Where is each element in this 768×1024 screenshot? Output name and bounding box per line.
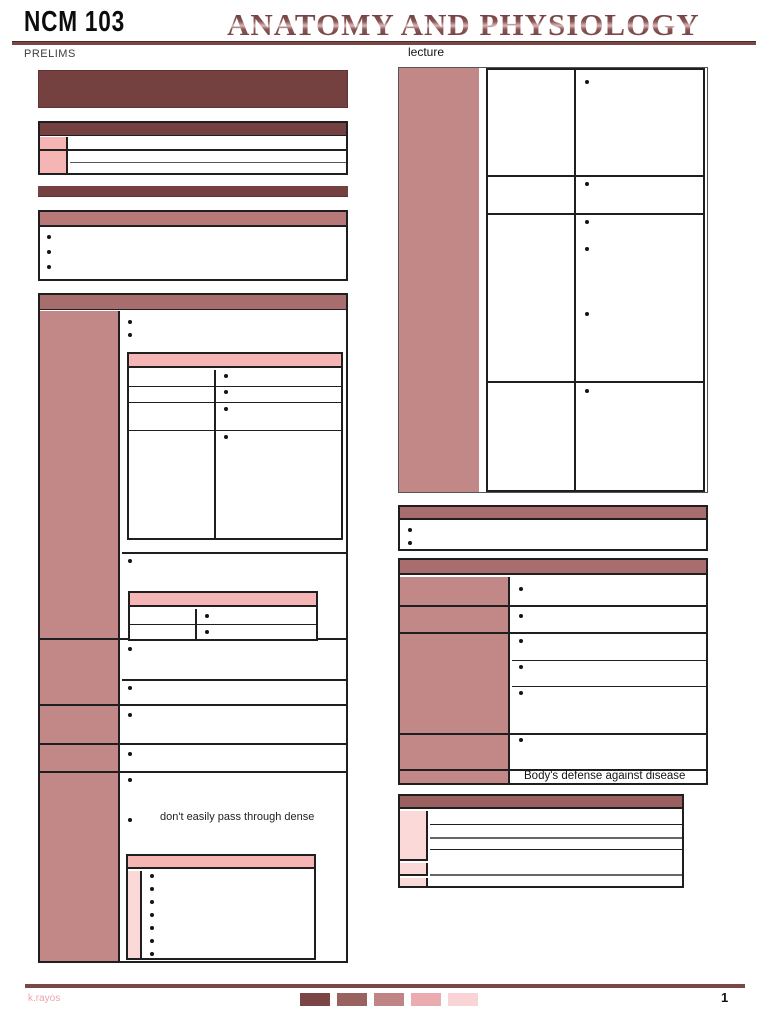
terms-table (38, 121, 348, 175)
bullet-dot (150, 900, 154, 904)
nested-table-1 (127, 352, 343, 540)
column-divider (574, 70, 576, 490)
row-divider (430, 824, 682, 825)
bullet-dot (585, 312, 589, 316)
left-note-text: don't easily pass through dense (160, 811, 314, 823)
bullet-dot (519, 614, 523, 618)
nested-table-3-pink-column (128, 871, 142, 958)
bullet-dot (519, 665, 523, 669)
column-divider (214, 370, 216, 538)
row-divider (40, 771, 346, 773)
row-divider (430, 874, 682, 876)
main-notes-table: don't easily pass through dense (38, 293, 348, 963)
bullet-dot (150, 939, 154, 943)
nested-table-1-header (129, 354, 341, 368)
footer-swatch (448, 993, 478, 1006)
row-divider (488, 175, 703, 177)
summary-table (398, 505, 708, 551)
classification-table (398, 794, 684, 888)
footer-swatch (300, 993, 330, 1006)
document-page: NCM 103 ANATOMY AND PHYSIOLOGY PRELIMS l… (0, 0, 768, 1024)
bullet-dot (408, 528, 412, 532)
row-divider (40, 704, 346, 706)
row-divider (400, 733, 706, 735)
defense-table: Body's defense against disease (398, 558, 708, 785)
term-label: PRELIMS (24, 48, 76, 60)
nested-table-2-header (130, 593, 316, 607)
row-divider (40, 149, 346, 151)
bullet-dot (128, 713, 132, 717)
bullet-dot (205, 630, 209, 634)
footer-swatch (374, 993, 404, 1006)
bullet-dot (519, 738, 523, 742)
row-divider (488, 213, 703, 215)
row-divider (400, 632, 706, 634)
bullet-dot (47, 235, 51, 239)
footer-page-number: 1 (721, 990, 728, 1005)
bullet-dot (519, 587, 523, 591)
bullet-dot (224, 435, 228, 439)
bullet-dot (150, 926, 154, 930)
row-divider (129, 430, 341, 431)
bullet-dot (150, 952, 154, 956)
classification-pink-cell (400, 811, 428, 861)
defense-caption: Body's defense against disease (524, 770, 685, 782)
main-notes-body: don't easily pass through dense (40, 311, 346, 961)
course-code: NCM 103 (24, 6, 125, 39)
bullet-dot (224, 390, 228, 394)
bullet-dot (585, 220, 589, 224)
row-divider (400, 605, 706, 607)
defense-sidebar-cell (400, 577, 510, 783)
nested-table-3 (126, 854, 316, 960)
bullet-dot (519, 639, 523, 643)
bullet-dot (585, 80, 589, 84)
footer-swatch (411, 993, 441, 1006)
section-divider-bar (38, 186, 348, 197)
bullet-dot (150, 874, 154, 878)
nested-table-2 (128, 591, 318, 641)
row-divider (122, 679, 346, 681)
main-notes-table-header (40, 295, 346, 310)
footer-author: k.rayos (28, 993, 60, 1004)
bullet-dot (150, 913, 154, 917)
row-divider (70, 162, 346, 163)
header-rule (12, 41, 756, 45)
row-divider (512, 660, 706, 661)
page-title: ANATOMY AND PHYSIOLOGY (227, 7, 700, 43)
bullet-dot (585, 389, 589, 393)
right-notes-sidebar-cell (399, 68, 479, 492)
lecture-label: lecture (408, 45, 444, 59)
bullet-dot (150, 887, 154, 891)
notes-sidebar-cell (40, 311, 120, 961)
terms-table-pink-cell (40, 151, 68, 173)
footer-swatch (337, 993, 367, 1006)
defense-table-body: Body's defense against disease (400, 577, 706, 783)
solid-heading-block (38, 70, 348, 108)
bullet-list-table (38, 210, 348, 281)
bullet-dot (585, 182, 589, 186)
bullet-dot (47, 265, 51, 269)
bullet-dot (585, 247, 589, 251)
bullet-dot (205, 614, 209, 618)
terms-table-header (40, 123, 346, 136)
classification-table-header (400, 796, 682, 809)
bullet-dot (128, 778, 132, 782)
bullet-dot (128, 818, 132, 822)
bullet-dot (519, 691, 523, 695)
bullet-dot (224, 374, 228, 378)
bullet-dot (128, 333, 132, 337)
bullet-dot (128, 559, 132, 563)
terms-table-pink-cell (40, 137, 68, 149)
bullet-dot (224, 407, 228, 411)
bullet-dot (128, 647, 132, 651)
classification-pink-cell (400, 878, 428, 886)
row-divider (488, 381, 703, 383)
footer-swatches (300, 993, 485, 1011)
row-divider (130, 624, 316, 625)
row-divider (129, 402, 341, 403)
bullet-dot (47, 250, 51, 254)
row-divider (40, 743, 346, 745)
nested-table-3-header (128, 856, 314, 869)
row-divider (512, 686, 706, 687)
bullet-dot (408, 541, 412, 545)
classification-pink-cell (400, 863, 428, 876)
row-divider (430, 837, 682, 839)
right-nested-table (486, 68, 705, 492)
summary-table-header (400, 507, 706, 520)
bullet-list-table-header (40, 212, 346, 227)
row-divider (129, 386, 341, 387)
footer-rule (25, 984, 745, 988)
row-divider (430, 849, 682, 850)
row-divider (122, 552, 346, 554)
bullet-dot (128, 752, 132, 756)
bullet-dot (128, 320, 132, 324)
defense-table-header (400, 560, 706, 575)
bullet-dot (128, 686, 132, 690)
right-notes-table (398, 67, 708, 493)
